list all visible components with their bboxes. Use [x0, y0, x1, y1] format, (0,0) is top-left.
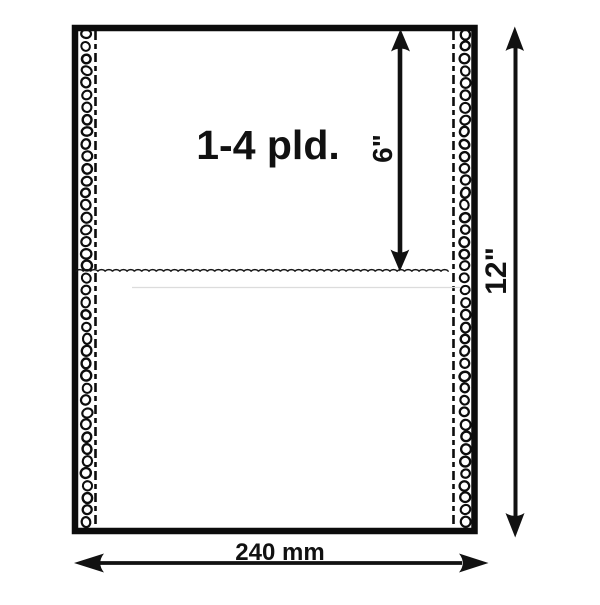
svg-text:240 mm: 240 mm	[235, 539, 324, 566]
svg-text:6": 6"	[367, 134, 398, 163]
svg-text:12": 12"	[480, 247, 513, 295]
svg-text:1-4 pld.: 1-4 pld.	[196, 122, 340, 168]
